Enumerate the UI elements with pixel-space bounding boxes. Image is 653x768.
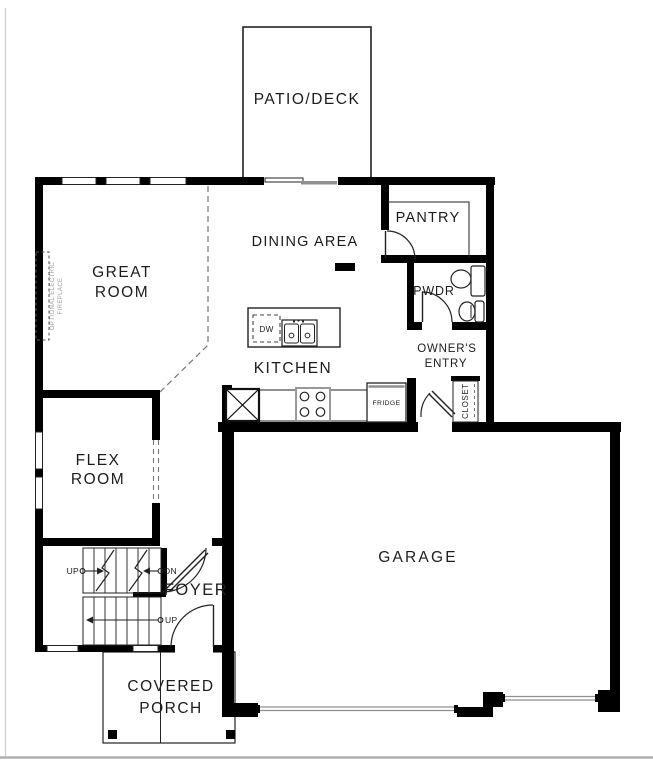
window [133, 646, 158, 652]
faucet-icon [293, 320, 295, 322]
stair-up2-label: UP [165, 615, 177, 625]
porch-post [108, 730, 117, 739]
porch-outline [103, 652, 235, 743]
sliding-door-fixed-panel [265, 178, 303, 182]
owners-entry-door-swing [421, 393, 430, 417]
fridge-label: FRIDGE [372, 400, 400, 407]
pantry-door-swing [387, 231, 415, 259]
owners-entry-door-leaf [429, 394, 452, 417]
flex-room-label-1: FLEX [76, 452, 121, 469]
floor-plan-canvas: PATIO/DECK COVERED PORCH [0, 0, 653, 768]
great-room-label-2: ROOM [95, 284, 149, 301]
kitchen-island: DW [248, 308, 340, 347]
fireplace-note-2: FIREPLACE [58, 278, 64, 315]
toilet-bowl-icon [459, 302, 475, 321]
patio-deck-label: PATIO/DECK [254, 91, 361, 108]
owners-entry-label-2: ENTRY [425, 358, 468, 370]
front-door-swing [171, 605, 213, 647]
great-room-label-1: GREAT [92, 264, 152, 281]
pwdr-label: PWDR [413, 284, 454, 298]
sliding-door [264, 177, 338, 186]
window [106, 178, 140, 185]
pwdr-fixtures [451, 266, 485, 322]
covered-porch-label-2: PORCH [139, 700, 202, 717]
window [47, 646, 78, 652]
patio-deck: PATIO/DECK [243, 27, 371, 181]
porch-post [226, 730, 235, 739]
toilet-tank-icon [475, 301, 484, 322]
closet-label: CLOSET [461, 383, 470, 419]
stove-icon [296, 388, 330, 421]
flex-room-label-2: ROOM [71, 471, 125, 488]
garage-label: GARAGE [378, 549, 458, 566]
pantry-door [386, 231, 416, 259]
vanity-icon [471, 266, 485, 296]
fireplace-note-1: OPTIONAL ELECTRIC [50, 262, 56, 331]
arrow-left-icon [86, 617, 93, 624]
kitchen-label: KITCHEN [254, 360, 333, 377]
owners-entry-label-1: OWNER'S [417, 343, 477, 355]
window [62, 178, 96, 185]
window [36, 477, 43, 509]
dishwasher-label: DW [259, 325, 273, 334]
stair-dn-label: DN [164, 566, 177, 576]
window [36, 432, 43, 469]
garage-doors [256, 694, 599, 713]
sliding-door-panel [301, 181, 337, 185]
great-room-boundary-dash [158, 186, 208, 394]
covered-porch: COVERED PORCH [103, 652, 235, 743]
floor-plan-page: PATIO/DECK COVERED PORCH [0, 0, 653, 768]
covered-porch-label-1: COVERED [127, 678, 214, 695]
owners-entry-door-leaf [432, 391, 455, 414]
window [150, 178, 186, 185]
stair-up-label: UP [67, 566, 79, 576]
dining-area-label: DINING AREA [252, 234, 359, 250]
pantry-label: PANTRY [396, 210, 461, 226]
stairs: UP DN UP [67, 548, 178, 645]
exterior-walls [35, 177, 621, 717]
owners-entry-door [421, 391, 455, 417]
arrow-left-icon [143, 568, 150, 575]
kitchen-counter: FRIDGE [226, 383, 406, 422]
front-door [171, 605, 214, 653]
foyer-label: FOYER [164, 581, 228, 599]
